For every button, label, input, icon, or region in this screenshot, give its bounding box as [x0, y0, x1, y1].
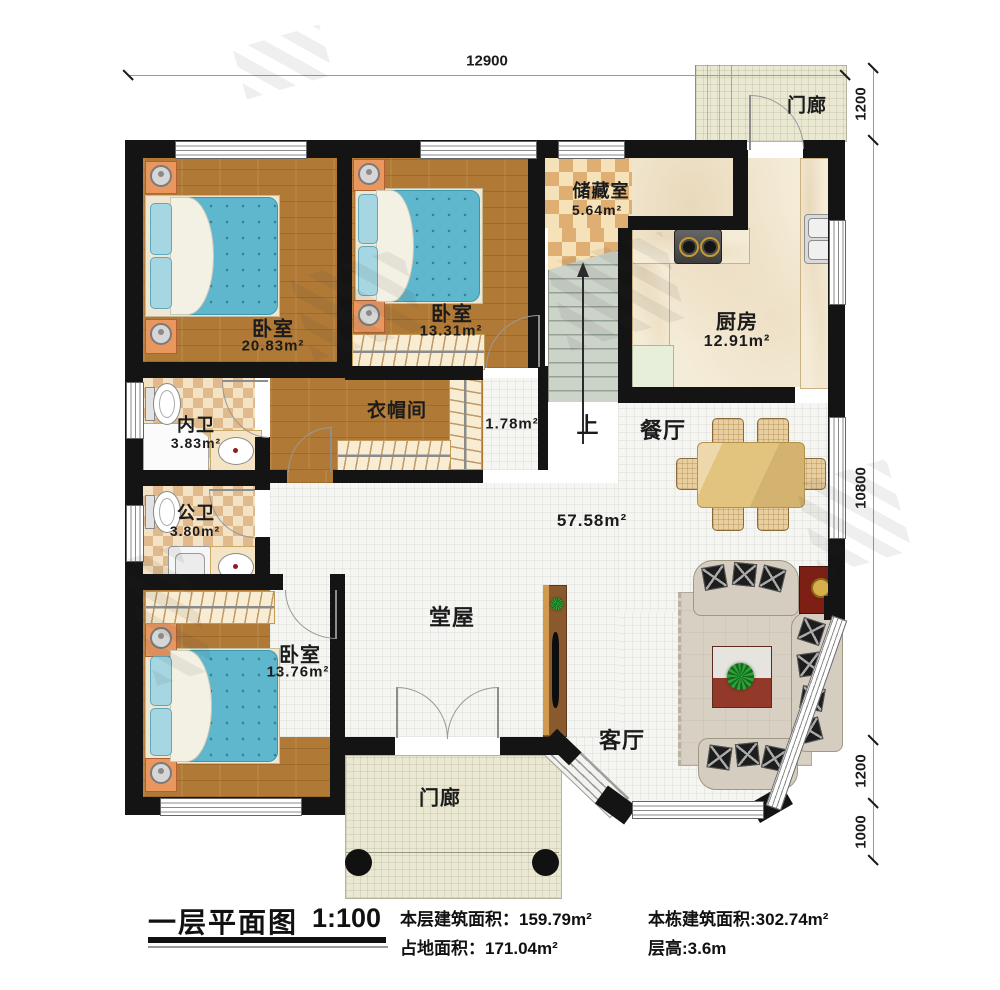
page-title: 一层平面图	[148, 901, 298, 941]
bedroom2-nightstand-top	[353, 159, 385, 191]
wall	[125, 362, 352, 378]
dimension-line-top	[128, 75, 845, 76]
stove-burner-right	[700, 237, 720, 257]
wall	[255, 470, 287, 483]
bath-public-area: 3.80m²	[170, 523, 220, 539]
dimension-top-value: 12900	[466, 53, 508, 70]
plan-scale: 1:100	[312, 903, 381, 934]
wall	[618, 387, 795, 403]
dimension-right-value: 10800	[853, 467, 870, 509]
cloakroom-rack-right	[449, 378, 482, 470]
bath-sink-icon	[218, 437, 254, 465]
sofa-cushion	[707, 745, 733, 771]
bay-window-bottom	[632, 801, 764, 819]
stat-total-area: 本栋建筑面积:302.74m²	[648, 905, 828, 930]
bedroom1-nightstand-top	[145, 161, 177, 194]
wall	[333, 470, 483, 483]
tv-icon	[552, 632, 559, 708]
sofa-cushion	[701, 564, 728, 591]
bath-public-label: 公卫	[177, 499, 215, 525]
kitchen-label: 厨房	[716, 306, 758, 335]
dining-label: 餐厅	[640, 413, 686, 445]
porch-top-steps	[695, 65, 743, 140]
bedroom1-pillow	[150, 257, 172, 309]
window	[126, 382, 144, 439]
dining-table	[697, 442, 805, 508]
porch-bottom-stepline	[346, 852, 559, 853]
wall	[345, 366, 483, 380]
bedroom2-pillow	[358, 194, 378, 244]
watermark	[233, 25, 334, 100]
porch-column-left	[345, 849, 372, 876]
bedroom3-wardrobe	[145, 591, 275, 624]
cloakroom-label: 衣帽间	[367, 396, 427, 423]
floor-plan: 卧室 20.83m² 卧室 13.31m² 卧室 13.76m² 储藏室 5.6…	[0, 0, 1000, 990]
stat-floor-height: 层高:3.6m	[648, 934, 726, 959]
lamp-icon	[150, 762, 172, 784]
bedroom3-pillow	[150, 708, 172, 756]
window	[829, 417, 846, 539]
hall-area: 57.58m²	[557, 511, 627, 531]
plant-icon	[551, 598, 563, 610]
wall	[618, 228, 632, 403]
dimension-right-value: 1000	[853, 815, 870, 848]
fridge	[632, 345, 674, 389]
stat-land-area: 占地面积：171.04m²	[400, 934, 558, 959]
sofa-cushion	[732, 562, 757, 587]
bedroom3-area: 13.76m²	[267, 664, 330, 681]
porch-top-label: 门廊	[787, 91, 827, 118]
bedroom1-nightstand-bottom	[145, 319, 177, 354]
wall	[125, 470, 270, 486]
bath-inner-area: 3.83m²	[171, 435, 221, 451]
plant-icon	[727, 663, 754, 690]
lamp-icon	[150, 165, 172, 187]
title-underline	[148, 937, 386, 943]
bedroom1-area: 20.83m²	[242, 338, 305, 355]
stat-floor-area: 本层建筑面积：159.79m²	[400, 905, 592, 930]
dimension-right-value: 1200	[853, 754, 870, 787]
porch-column-right	[532, 849, 559, 876]
living-label: 客厅	[599, 723, 645, 755]
bedroom3-nightstand-bottom	[145, 758, 177, 792]
lamp-icon	[358, 304, 380, 326]
wall	[628, 216, 748, 230]
sofa-cushion	[735, 742, 760, 767]
dimension-right-value: 1200	[853, 87, 870, 120]
cloakroom-rack-bottom	[337, 440, 451, 472]
wall	[345, 737, 395, 755]
bedroom3-pillow	[150, 656, 172, 706]
window	[829, 220, 846, 305]
title-underline-2	[148, 946, 388, 948]
wall	[125, 574, 283, 590]
stairs-up-label: 上	[576, 408, 599, 440]
stairs-up-arrow-icon	[577, 262, 589, 277]
bedroom2-area: 13.31m²	[420, 323, 483, 340]
hall-label: 堂屋	[429, 600, 475, 632]
bath-inner-label: 内卫	[177, 411, 215, 437]
wall	[337, 140, 352, 378]
lamp-icon	[150, 323, 172, 345]
storage-label: 储藏室	[573, 177, 630, 203]
bedroom2-pillow	[358, 246, 378, 296]
wall	[538, 366, 548, 470]
kitchen-area: 12.91m²	[704, 333, 771, 351]
porch-bottom-floor	[345, 755, 562, 899]
stove-burner-left	[679, 237, 699, 257]
kitchen-counter-right	[800, 158, 830, 389]
lamp-icon	[358, 163, 380, 185]
storage-area: 5.64m²	[572, 202, 622, 218]
bedroom2-nightstand-bottom	[353, 300, 385, 333]
window	[420, 141, 537, 159]
porch-bottom-label: 门廊	[419, 782, 461, 811]
window	[160, 798, 302, 816]
window	[175, 141, 307, 159]
tv-cabinet-edge	[543, 585, 549, 735]
bedroom1-pillow	[150, 203, 172, 255]
window	[558, 141, 625, 159]
wall	[733, 150, 748, 230]
window	[126, 505, 144, 562]
stair-corner-area: 1.78m²	[485, 416, 539, 433]
lamp-icon	[150, 627, 172, 649]
wall	[828, 140, 845, 612]
